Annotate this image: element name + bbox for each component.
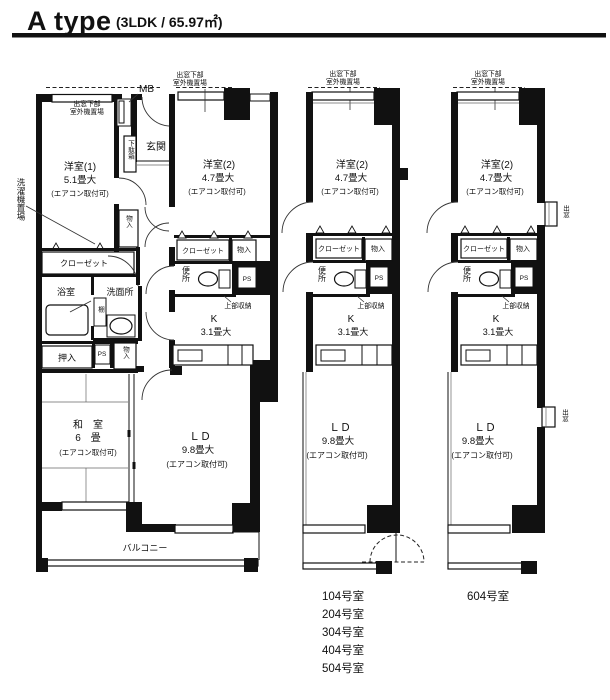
hallway-walls: [136, 94, 182, 375]
main-floor-plan: 出窓下部 室外機置場 出窓下部 室外機置場 MB 玄関 下駄箱 洋室(1) 5.…: [16, 70, 278, 572]
label-entrance: 玄関: [146, 140, 166, 153]
room-number-104: 104号室: [322, 589, 364, 603]
label-ld-aircon-r: (エアコン取付可): [451, 450, 513, 460]
label-closet-r: クローゼット: [463, 244, 505, 253]
label-closet-1: クローゼット: [60, 258, 108, 268]
meter-box: [117, 99, 131, 126]
label-ps-hall: PS: [98, 351, 107, 358]
room-number-604: 604号室: [467, 589, 509, 603]
label-washroom: 洗面所: [106, 286, 133, 297]
door-arc: [428, 262, 458, 292]
room-number-204: 204号室: [322, 607, 364, 621]
label-toilet-m: 便所: [318, 265, 327, 283]
kitchen-door-arc: [146, 312, 174, 340]
label-outdoor-unit-r: 室外機置場: [471, 77, 505, 86]
wall: [174, 294, 236, 297]
label-room2-name-r: 洋室(2): [481, 158, 513, 171]
window: [448, 525, 510, 533]
right-floor-plan: 出窓下部 室外機置場 出窓 洋室(2) 4.7畳大 (エアコン取: [427, 69, 570, 574]
label-oshiire: 押入: [58, 352, 76, 363]
slide-mark: [210, 231, 218, 238]
label-room1-size: 5.1畳大: [64, 174, 97, 186]
bathtub: [46, 305, 88, 335]
right-walls: [451, 88, 545, 533]
toilet-bowl: [199, 272, 218, 286]
window: [457, 92, 519, 100]
wall: [40, 248, 136, 251]
bay-window-1: [545, 202, 557, 226]
slide-mark: [527, 226, 535, 233]
label-kitchen-m: K: [348, 314, 355, 325]
label-ps-k: PS: [243, 276, 252, 283]
label-mb: MB: [139, 84, 154, 95]
label-room2-size: 4.7畳大: [202, 172, 235, 184]
window: [312, 92, 374, 100]
slide-mark: [382, 226, 390, 233]
slide-mark: [461, 226, 469, 233]
label-ps-r: PS: [520, 275, 529, 282]
room-number-lists: 104号室 204号室 304号室 404号室 504号室 604号室: [322, 589, 509, 675]
label-ld-m: ＬＤ: [329, 422, 351, 434]
title-rule: [12, 33, 606, 38]
middle-walls: [306, 88, 408, 533]
partition-swing-arc: [370, 535, 424, 562]
label-ld-size-m: 9.8畳大: [322, 435, 355, 447]
label-outdoor-unit-m: 室外機置場: [326, 77, 360, 86]
label-balcony: バルコニー: [123, 543, 168, 553]
label-kitchen-size-m: 3.1畳大: [338, 326, 369, 337]
page-title: A type (3LDK / 65.97㎡): [12, 6, 606, 38]
wall: [40, 274, 136, 277]
window: [250, 94, 270, 101]
label-bay-lower-2: 出窓下部: [176, 70, 203, 79]
toilet-tank: [355, 270, 366, 288]
kitchen-counter: [461, 345, 537, 365]
label-outdoor-unit-2: 室外機置場: [173, 78, 207, 87]
wall: [40, 369, 138, 373]
kitchen-counter: [173, 345, 253, 365]
label-bay-window-2: 出窓: [561, 408, 569, 423]
toilet-bowl: [335, 272, 354, 286]
room-number-404: 404号室: [322, 643, 364, 657]
label-ld-aircon-m: (エアコン取付可): [306, 450, 368, 460]
window: [303, 525, 365, 533]
label-room2-size-r: 4.7畳大: [480, 172, 513, 184]
label-bay-lower-r: 出窓下部: [474, 69, 501, 78]
balcony-rail: [448, 563, 528, 569]
label-kitchen-size: 3.1畳大: [201, 326, 232, 337]
room-number-504: 504号室: [322, 661, 364, 675]
wall: [91, 326, 94, 340]
label-outdoor-unit-1: 室外機置場: [70, 107, 104, 116]
label-room1-name: 洋室(1): [64, 160, 96, 173]
label-closet-m: クローゼット: [318, 244, 360, 253]
slide-mark: [316, 226, 324, 233]
window: [178, 92, 224, 100]
room-number-304: 304号室: [322, 625, 364, 639]
toilet-door-arc: [146, 266, 174, 294]
label-room2-name-m: 洋室(2): [336, 158, 368, 171]
label-kitchen: K: [211, 314, 218, 325]
label-washitsu-size: 6 畳: [75, 432, 101, 444]
wall: [93, 338, 140, 341]
wall: [174, 235, 270, 238]
window: [62, 502, 128, 510]
toilet-tank: [219, 270, 230, 288]
bay-window-2: [542, 407, 555, 427]
wash-basin: [110, 318, 132, 334]
wall: [91, 277, 94, 295]
label-bay-window-1: 出窓: [562, 204, 570, 219]
label-storage-r: 物入: [516, 244, 530, 253]
wall: [521, 561, 537, 574]
label-kitchen-r: K: [493, 314, 500, 325]
label-washitsu-aircon: (エアコン取付可): [59, 447, 117, 457]
label-toilet-r: 便所: [463, 265, 472, 283]
label-storage-mid: 物入: [237, 245, 251, 254]
door-arc: [427, 202, 458, 233]
label-laundry-space: 洗濯機置場: [16, 177, 26, 221]
door-arc: [283, 262, 313, 292]
label-storage-m: 物入: [371, 244, 385, 253]
label-kitchen-size-r: 3.1畳大: [483, 326, 514, 337]
room1-door-arc: [119, 178, 146, 205]
label-ld: ＬＤ: [189, 431, 211, 443]
label-room2-aircon-m: (エアコン取付可): [321, 186, 379, 196]
entrance-door-arc: [142, 97, 171, 126]
kitchen-counter: [316, 345, 392, 365]
label-ld-r: ＬＤ: [474, 422, 496, 434]
balcony-rail: [303, 563, 383, 569]
label-ld-size-r: 9.8畳大: [462, 435, 495, 447]
label-upper-storage-m: 上部収納: [357, 301, 384, 310]
wall: [376, 561, 392, 574]
floor-plan-drawing: A type (3LDK / 65.97㎡) 出窓下部: [0, 0, 610, 700]
slide-mark: [348, 226, 356, 233]
window: [175, 525, 233, 533]
label-bay-lower-m: 出窓下部: [329, 69, 356, 78]
label-room2-name: 洋室(2): [203, 158, 235, 171]
room2-double-door-arc: [145, 207, 169, 231]
label-upper-storage-r: 上部収納: [502, 301, 529, 310]
label-ld-aircon: (エアコン取付可): [166, 459, 228, 469]
door-arc: [282, 202, 313, 233]
balcony-structure: [36, 502, 259, 572]
floor-plan-page: A type (3LDK / 65.97㎡) 出窓下部: [0, 0, 610, 700]
label-washitsu: 和 室: [73, 418, 103, 431]
room2-double-door-arc: [145, 223, 169, 247]
label-room2-aircon: (エアコン取付可): [188, 186, 246, 196]
toilet-bowl: [480, 272, 499, 286]
slide-mark: [244, 231, 252, 238]
slide-mark: [493, 226, 501, 233]
label-ps-m: PS: [375, 275, 384, 282]
fusuma-partition: [128, 374, 136, 503]
slide-mark: [178, 231, 186, 238]
label-upper-storage: 上部収納: [224, 301, 251, 310]
label-room2-size-m: 4.7畳大: [335, 172, 368, 184]
middle-floor-plan: 出窓下部 室外機置場 洋室(2) 4.7畳大 (エアコン取付可) クローゼット: [282, 69, 424, 574]
toilet-tank: [500, 270, 511, 288]
plan-spec: (3LDK / 65.97㎡): [116, 14, 223, 30]
label-room1-aircon: (エアコン取付可): [51, 188, 109, 198]
label-room2-aircon-r: (エアコン取付可): [466, 186, 524, 196]
label-toilet: 便所: [182, 265, 191, 283]
label-bay-lower-1: 出窓下部: [73, 99, 100, 108]
label-ld-size: 9.8畳大: [182, 444, 215, 456]
label-closet-2: クローゼット: [182, 246, 224, 255]
plan-type-title: A type: [27, 6, 112, 36]
label-bath: 浴室: [57, 286, 75, 297]
ld-door-arc: [142, 370, 172, 400]
